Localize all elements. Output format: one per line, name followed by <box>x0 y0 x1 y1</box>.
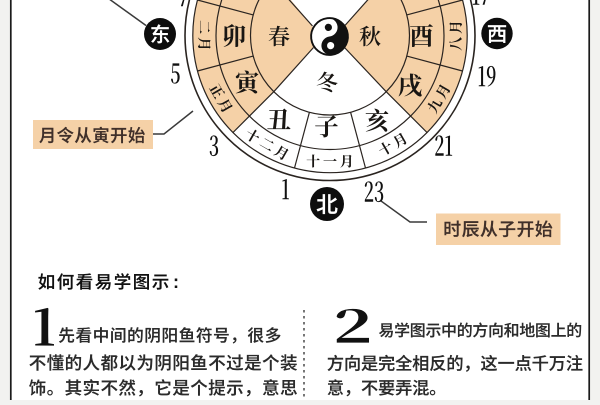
svg-text::: : <box>173 272 179 292</box>
